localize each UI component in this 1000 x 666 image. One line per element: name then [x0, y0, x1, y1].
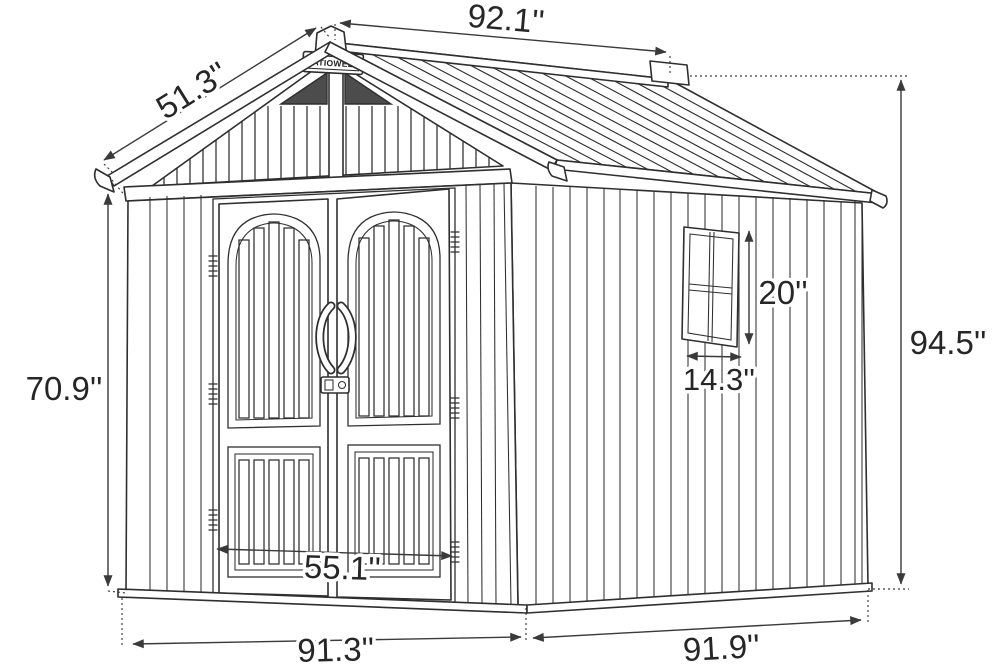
window [682, 227, 739, 347]
dim-label-door-width: 55.1'' [303, 548, 381, 587]
dimension-window-width: 14.3'' [683, 356, 755, 397]
door-lock [321, 377, 349, 393]
dim-label-overall-height: 94.5'' [910, 324, 987, 361]
dim-label-wall-height: 70.9'' [26, 370, 103, 407]
dimension-wall-height: 70.9'' [26, 180, 126, 593]
dim-label-window-height: 20'' [758, 274, 807, 311]
left-eave-return [95, 169, 114, 192]
dim-label-base-front: 91.3'' [297, 630, 375, 666]
dim-label-window-width: 14.3'' [683, 362, 755, 397]
door-right [337, 189, 451, 600]
dim-label-ridge-length: 92.1'' [466, 0, 546, 40]
front-wall [126, 183, 518, 606]
gable-center-post [329, 56, 343, 188]
eave-corner-return [870, 190, 887, 208]
shed-diagram-svg: PATIOWELL [0, 0, 1000, 666]
dim-label-base-side: 91.9'' [682, 627, 761, 666]
shed-dimension-diagram: PATIOWELL [0, 0, 1000, 666]
